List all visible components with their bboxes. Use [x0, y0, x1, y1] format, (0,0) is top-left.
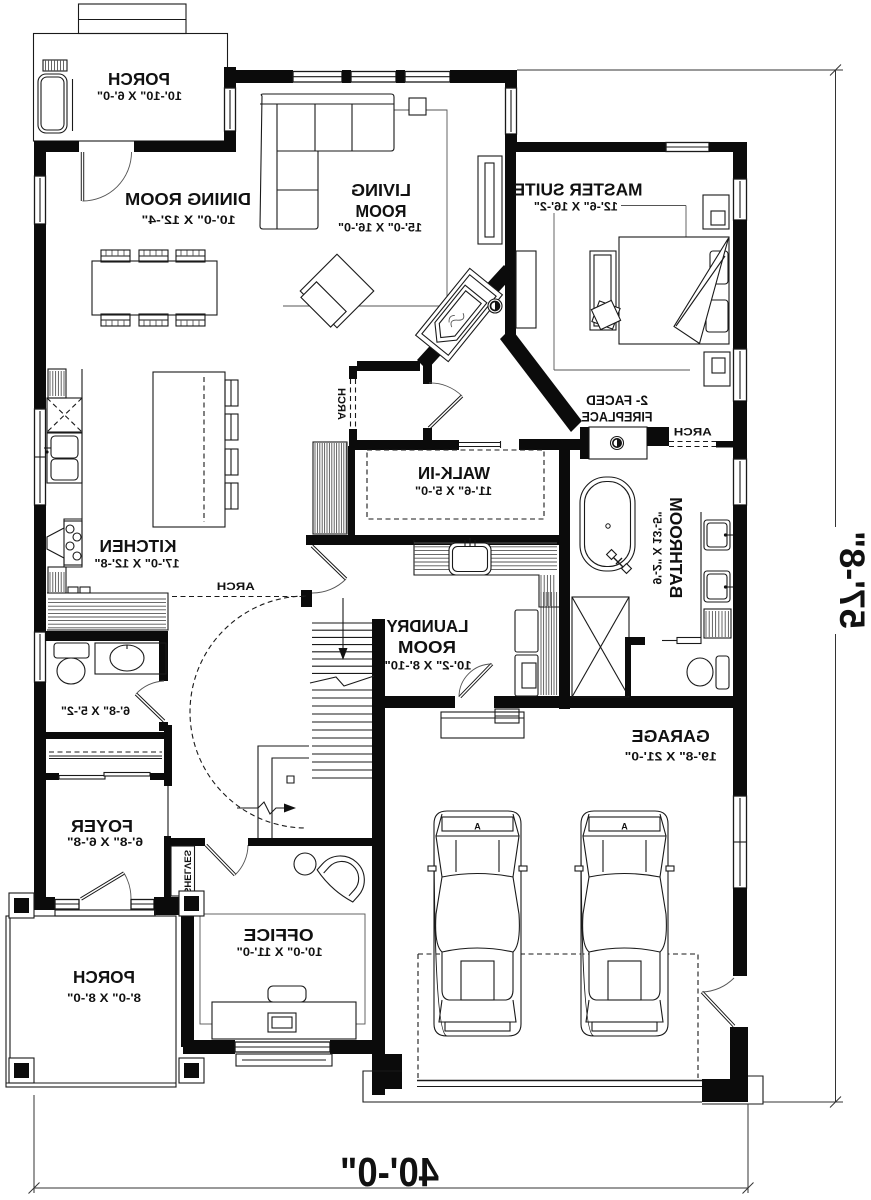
- svg-text:40'-0": 40'-0": [340, 1149, 439, 1195]
- svg-text:LIVING: LIVING: [351, 180, 411, 200]
- svg-text:17'-0" X 12'-8": 17'-0" X 12'-8": [95, 559, 180, 571]
- svg-text:15'-0" X 16'-0": 15'-0" X 16'-0": [338, 223, 422, 235]
- svg-text:SHELVES: SHELVES: [182, 850, 193, 894]
- svg-text:GARAGE: GARAGE: [632, 726, 710, 746]
- svg-text:ARCH: ARCH: [335, 388, 347, 420]
- svg-text:ARCH: ARCH: [217, 581, 255, 593]
- svg-text:LAUNDRY: LAUNDRY: [386, 616, 468, 636]
- svg-text:6'-8" X 6'-8": 6'-8" X 6'-8": [67, 837, 143, 849]
- svg-text:DINING ROOM: DINING ROOM: [125, 189, 251, 209]
- svg-text:KITCHEN: KITCHEN: [100, 536, 177, 556]
- svg-text:PORCH: PORCH: [108, 69, 170, 89]
- svg-text:FIREPLACE: FIREPLACE: [582, 410, 653, 425]
- svg-text:8'-0" X 8'-0": 8'-0" X 8'-0": [67, 993, 141, 1005]
- svg-text:MASTER SUITE: MASTER SUITE: [514, 179, 643, 199]
- svg-text:PORCH: PORCH: [73, 967, 135, 987]
- svg-text:OFFICE: OFFICE: [244, 925, 314, 945]
- svg-text:9'-2" X 13'-5": 9'-2" X 13'-5": [650, 512, 662, 585]
- svg-text:BATHROOM: BATHROOM: [666, 497, 686, 598]
- svg-text:ARCH: ARCH: [674, 427, 712, 439]
- svg-text:10'-0" X 12'-4": 10'-0" X 12'-4": [142, 215, 236, 227]
- svg-text:A: A: [621, 822, 628, 832]
- svg-text:10'-0" X 11'-0": 10'-0" X 11'-0": [237, 947, 323, 959]
- svg-text:11'-6" X 5'-0": 11'-6" X 5'-0": [415, 486, 492, 498]
- svg-text:ROOM: ROOM: [398, 637, 456, 657]
- svg-text:57'-8": 57'-8": [832, 531, 871, 629]
- svg-text:12'-6" X 16'-2": 12'-6" X 16'-2": [534, 201, 618, 213]
- svg-text:FOYER: FOYER: [71, 816, 133, 836]
- svg-text:2- FACED: 2- FACED: [586, 393, 648, 408]
- svg-text:WALK-IN: WALK-IN: [418, 463, 490, 483]
- svg-text:19'-8" X 21'-0": 19'-8" X 21'-0": [625, 751, 717, 763]
- svg-text:10'-10" X 6'-0": 10'-10" X 6'-0": [97, 91, 182, 103]
- svg-text:A: A: [474, 822, 481, 832]
- svg-text:6'-8" X 5'-2": 6'-8" X 5'-2": [61, 706, 130, 718]
- svg-text:ROOM: ROOM: [356, 201, 407, 221]
- svg-text:10'-2" X 8'-10": 10'-2" X 8'-10": [385, 661, 472, 673]
